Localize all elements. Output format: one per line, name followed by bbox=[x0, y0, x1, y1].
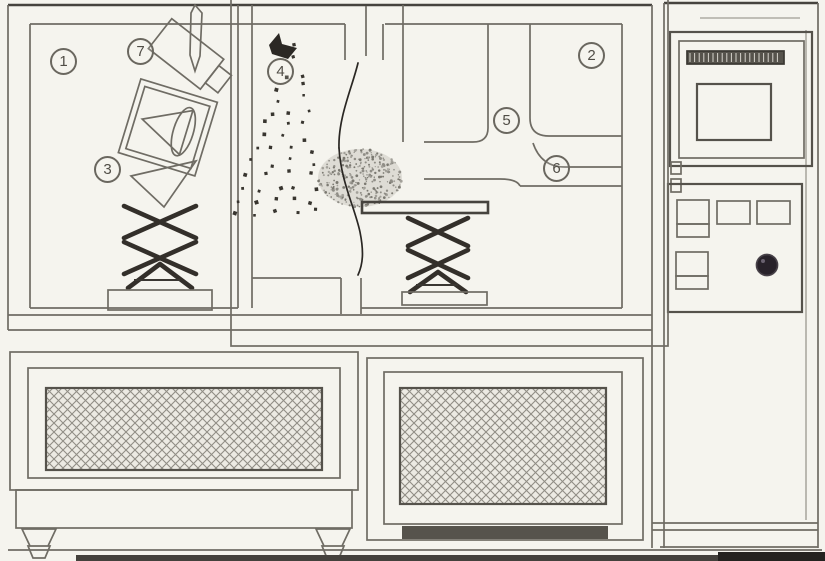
lamp-lens-device bbox=[118, 79, 217, 176]
scissor-lift-left bbox=[108, 206, 212, 310]
work-table bbox=[362, 202, 488, 213]
panel-button[interactable] bbox=[717, 201, 750, 224]
panel-button[interactable] bbox=[677, 224, 709, 237]
vent-grille-left bbox=[46, 388, 322, 470]
panel-button[interactable] bbox=[676, 276, 708, 289]
diagram-line-art bbox=[0, 0, 825, 561]
panel-button[interactable] bbox=[676, 252, 708, 276]
cabinet-lower-right bbox=[367, 330, 652, 548]
caster-wheel-left bbox=[22, 529, 56, 558]
cabinet-lower-left bbox=[10, 352, 358, 558]
floor bbox=[8, 550, 825, 561]
control-cabinet bbox=[652, 3, 818, 548]
panel-button[interactable] bbox=[677, 200, 709, 224]
test-specimen-blade bbox=[339, 63, 358, 148]
part-label-3: 3 bbox=[94, 156, 121, 183]
button-panel bbox=[668, 184, 802, 312]
part-label-1: 1 bbox=[50, 48, 77, 75]
panel-button[interactable] bbox=[757, 201, 790, 224]
part-label-5: 5 bbox=[493, 107, 520, 134]
part-label-6: 6 bbox=[543, 155, 570, 182]
control-knob[interactable] bbox=[757, 255, 778, 276]
tilted-projector-device bbox=[148, 19, 236, 99]
caster-wheel-right bbox=[316, 529, 350, 558]
vent-grille-right bbox=[400, 388, 606, 504]
scissor-lift-middle bbox=[402, 218, 487, 305]
part-label-2: 2 bbox=[578, 42, 605, 69]
display-window bbox=[697, 84, 771, 140]
part-label-4: 4 bbox=[267, 58, 294, 85]
part-label-7: 7 bbox=[127, 38, 154, 65]
machine-schematic-diagram: 1 2 3 4 5 6 7 bbox=[0, 0, 825, 561]
